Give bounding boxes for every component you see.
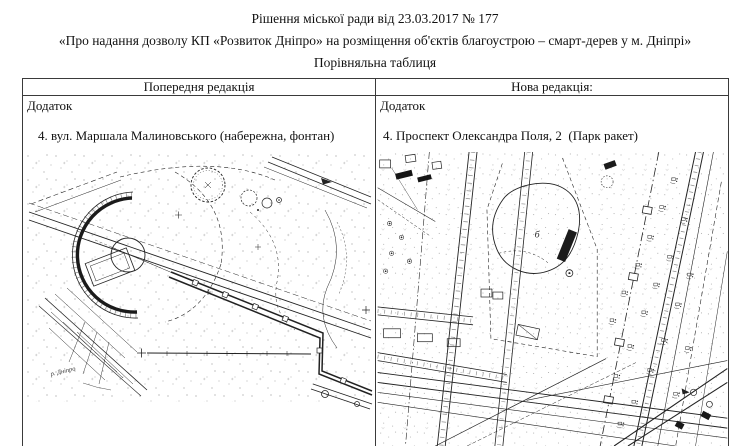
item-previous-address: 4. вул. Маршала Малиновського (набережна… (38, 128, 334, 144)
annex-label-new: Додаток (380, 98, 425, 114)
comparison-table-caption: Порівняльна таблиця (0, 55, 750, 71)
comparison-table: Попередня редакція Нова редакція: Додато… (22, 78, 729, 446)
site-plan-previous-location: р. Дніпро (25, 152, 373, 442)
annex-label-previous: Додаток (27, 98, 72, 114)
cell-previous-edition: Додаток 4. вул. Маршала Малиновського (н… (23, 97, 375, 446)
cell-new-edition: Додаток 4. Проспект Олександра Поля, 2 (… (376, 97, 728, 446)
document-subtitle: «Про надання дозволу КП «Розвиток Дніпро… (0, 33, 750, 49)
header-new-edition: Нова редакція: (376, 79, 728, 95)
document-title: Рішення міської ради від 23.03.2017 № 17… (0, 11, 750, 27)
item-new-address: 4. Проспект Олександра Поля, 2 (Парк рак… (383, 128, 638, 144)
table-column-divider (375, 79, 376, 446)
scanned-document-page: Рішення міської ради від 23.03.2017 № 17… (0, 0, 750, 446)
header-previous-edition: Попередня редакція (23, 79, 375, 95)
site-plan-new-location: б (377, 152, 728, 446)
